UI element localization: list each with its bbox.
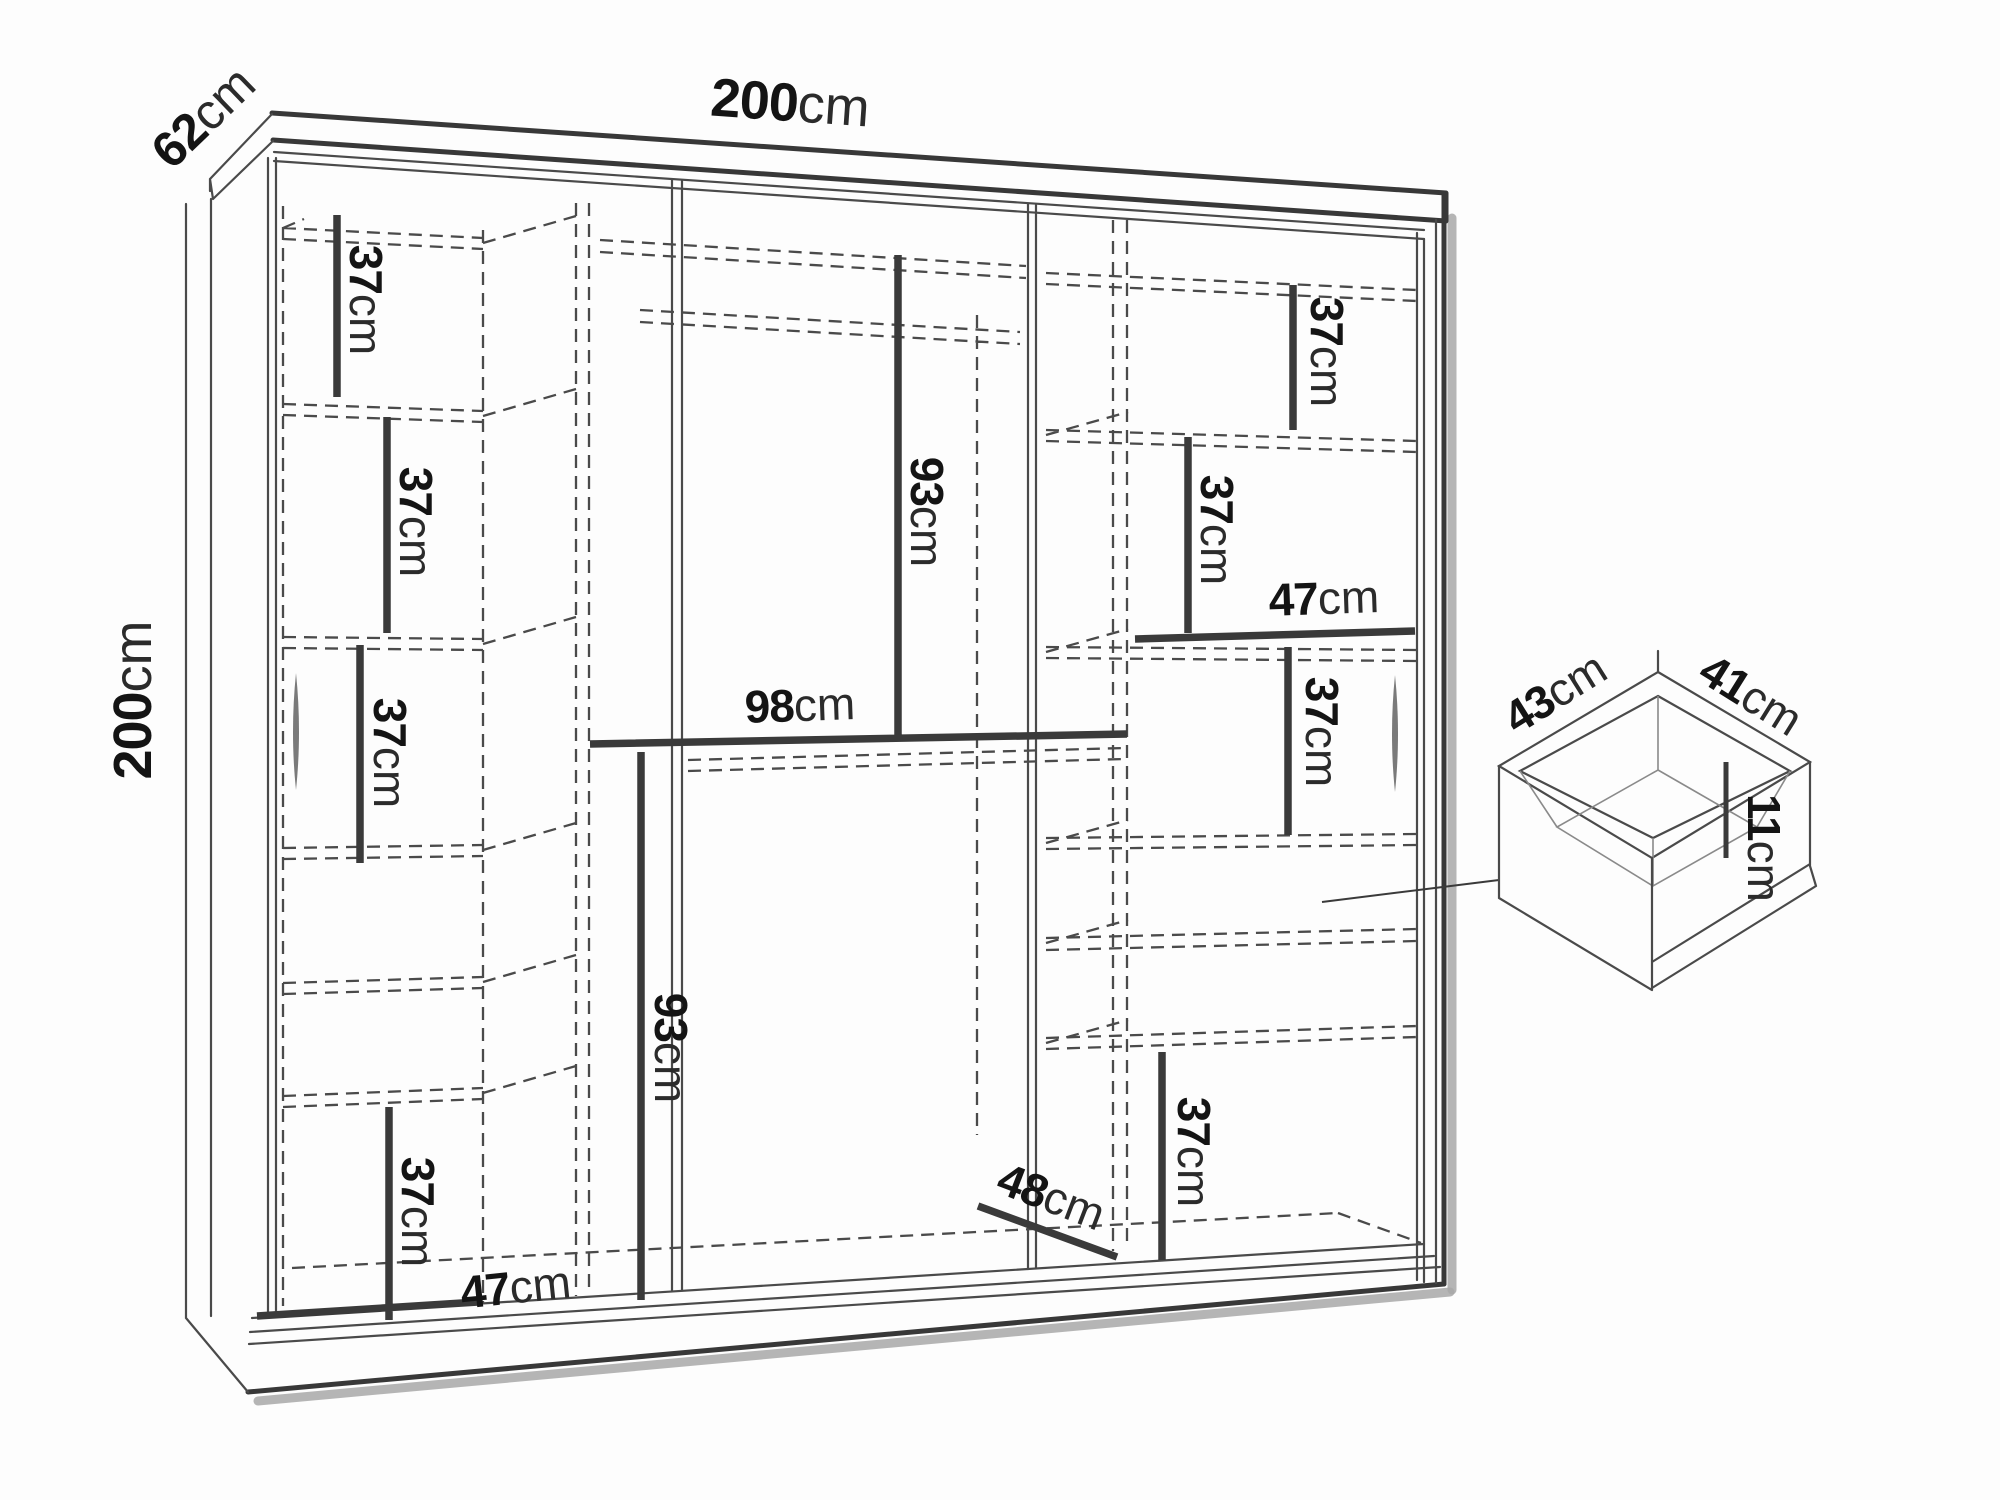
dim-right-width-value: 47 — [1268, 572, 1319, 626]
dim-shelf-right-4-label: 37cm — [1168, 1097, 1220, 1208]
dim-hanging-bottom-label: 93cm — [645, 993, 697, 1104]
interior-dashed-lines — [283, 203, 1421, 1306]
dim-shelf-right-2-unit: cm — [1191, 524, 1243, 585]
dim-width-label: 200cm — [709, 68, 872, 139]
left-column-shelves — [283, 216, 576, 1107]
dim-middle-width-unit: cm — [793, 677, 856, 731]
dim-shelf-right-3-label: 37cm — [1296, 677, 1348, 788]
dim-depth-label: 62cm — [141, 55, 266, 179]
dim-width-value: 200 — [709, 68, 800, 134]
dim-shelf-left-2-value: 37 — [390, 467, 442, 516]
dim-height-unit: cm — [103, 620, 163, 692]
dim-shelf-left-4-unit: cm — [392, 1206, 444, 1267]
dim-shelf-right-2-value: 37 — [1191, 475, 1243, 524]
dim-width-unit: cm — [796, 74, 872, 139]
dim-shelf-left-1-label: 37cm — [340, 245, 392, 356]
dim-hanging-bottom-unit: cm — [645, 1042, 697, 1103]
dim-right-width-label: 47cm — [1268, 570, 1380, 626]
right-door-handle — [1392, 675, 1398, 792]
wardrobe-diagram: 200cm 62cm 200cm 37cm 37cm 37cm 37cm 47c… — [0, 0, 2000, 1500]
dim-shelf-left-4-value: 37 — [392, 1157, 444, 1206]
dim-drawer-depth-label: 41cm — [1690, 643, 1811, 746]
dim-shelf-right-4-unit: cm — [1168, 1146, 1220, 1207]
dim-height-label: 200cm — [103, 620, 163, 779]
inner-frame-top — [274, 152, 1424, 239]
dim-middle-width-label: 98cm — [744, 677, 856, 733]
dim-shelf-right-3-value: 37 — [1296, 677, 1348, 726]
dim-bottom-left-width-unit: cm — [507, 1256, 573, 1314]
left-door-handle — [293, 673, 299, 790]
dim-shelf-right-1-label: 37cm — [1301, 297, 1353, 408]
bottom-outer-edge — [248, 1284, 1444, 1392]
dim-shelf-left-1-value: 37 — [340, 245, 392, 294]
left-column-verticals — [283, 203, 589, 1306]
dim-height-value: 200 — [103, 692, 163, 779]
dim-middle-width-value: 98 — [744, 679, 795, 733]
dim-shelf-left-4-label: 37cm — [392, 1157, 444, 1268]
dim-shelf-left-3-value: 37 — [364, 698, 416, 747]
dim-hanging-top-label: 93cm — [901, 457, 953, 568]
inner-frame-right — [1417, 220, 1436, 1283]
dim-bottom-left-width-label: 47cm — [458, 1256, 573, 1319]
dim-shelf-right-2-label: 37cm — [1191, 475, 1243, 586]
dim-shelf-left-3-unit: cm — [364, 747, 416, 808]
divider-left — [672, 180, 682, 1291]
dim-shelf-right-1-value: 37 — [1301, 297, 1353, 346]
dim-drawer-height-label: 11cm — [1738, 794, 1790, 902]
right-column-shelves — [1046, 273, 1417, 1049]
dim-hanging-top-value: 93 — [901, 457, 953, 506]
drawer-leader-line — [1322, 880, 1499, 902]
dim-shelf-left-1-unit: cm — [340, 294, 392, 355]
dim-hanging-top-unit: cm — [901, 506, 953, 567]
dim-right-width-unit: cm — [1317, 570, 1380, 624]
dim-hanging-bottom-value: 93 — [645, 993, 697, 1042]
floor-back-edge — [292, 1213, 1421, 1268]
dim-shelf-left-3-label: 37cm — [364, 698, 416, 809]
diagram-canvas: 200cm 62cm 200cm 37cm 37cm 37cm 37cm 47c… — [0, 0, 2000, 1500]
dim-shelf-right-3-unit: cm — [1296, 726, 1348, 787]
dim-bottom-left-width-value: 47 — [458, 1262, 512, 1319]
dim-shelf-right-1-unit: cm — [1301, 346, 1353, 407]
dim-drawer-height-value: 11 — [1738, 794, 1790, 841]
dim-shelf-left-2-label: 37cm — [390, 467, 442, 578]
dim-shelf-left-2-unit: cm — [390, 516, 442, 577]
left-side-panel-edges — [186, 199, 248, 1392]
inner-frame-left — [268, 158, 276, 1314]
dim-drawer-height-unit: cm — [1738, 841, 1790, 902]
dim-shelf-right-4-value: 37 — [1168, 1097, 1220, 1146]
